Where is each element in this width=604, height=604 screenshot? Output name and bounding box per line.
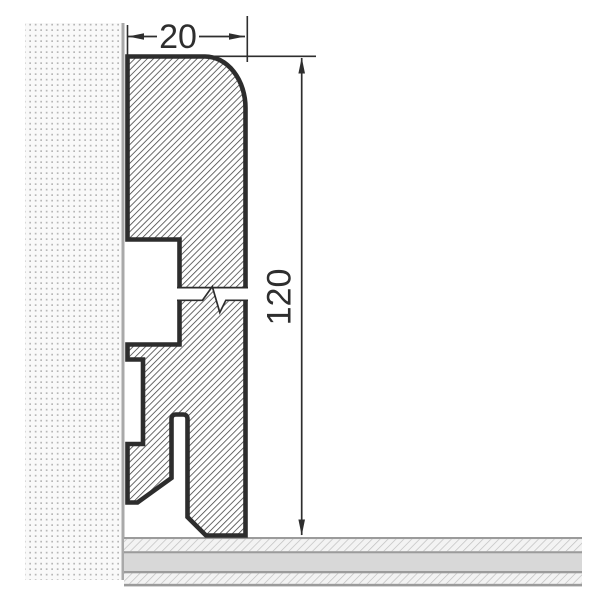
skirting-profile bbox=[128, 57, 249, 536]
floor-layer-line-2 bbox=[124, 571, 582, 573]
floor-screed-band-bottom bbox=[124, 573, 582, 583]
width-arrow-right bbox=[229, 33, 245, 40]
width-arrow-left bbox=[128, 33, 144, 40]
wall-stipple-area bbox=[25, 23, 122, 580]
drawing-stage: 20 120 bbox=[0, 0, 604, 604]
floor-screed-band-top bbox=[124, 539, 582, 551]
wall-section bbox=[25, 23, 125, 580]
floor-top-line bbox=[124, 537, 582, 539]
technical-drawing-canvas: 20 120 bbox=[0, 0, 604, 604]
wall-surface-line bbox=[122, 23, 125, 580]
height-dimension-label: 120 bbox=[261, 269, 299, 326]
height-arrow-top bbox=[298, 58, 305, 74]
height-arrow-bottom bbox=[298, 520, 305, 536]
profile-upper-fill bbox=[128, 57, 246, 288]
floor-bottom-line bbox=[124, 584, 582, 587]
floor-layer-line-1 bbox=[124, 551, 582, 553]
floor-underlay-band bbox=[124, 553, 582, 571]
floor-section bbox=[124, 537, 582, 586]
width-dimension-label: 20 bbox=[159, 18, 197, 56]
